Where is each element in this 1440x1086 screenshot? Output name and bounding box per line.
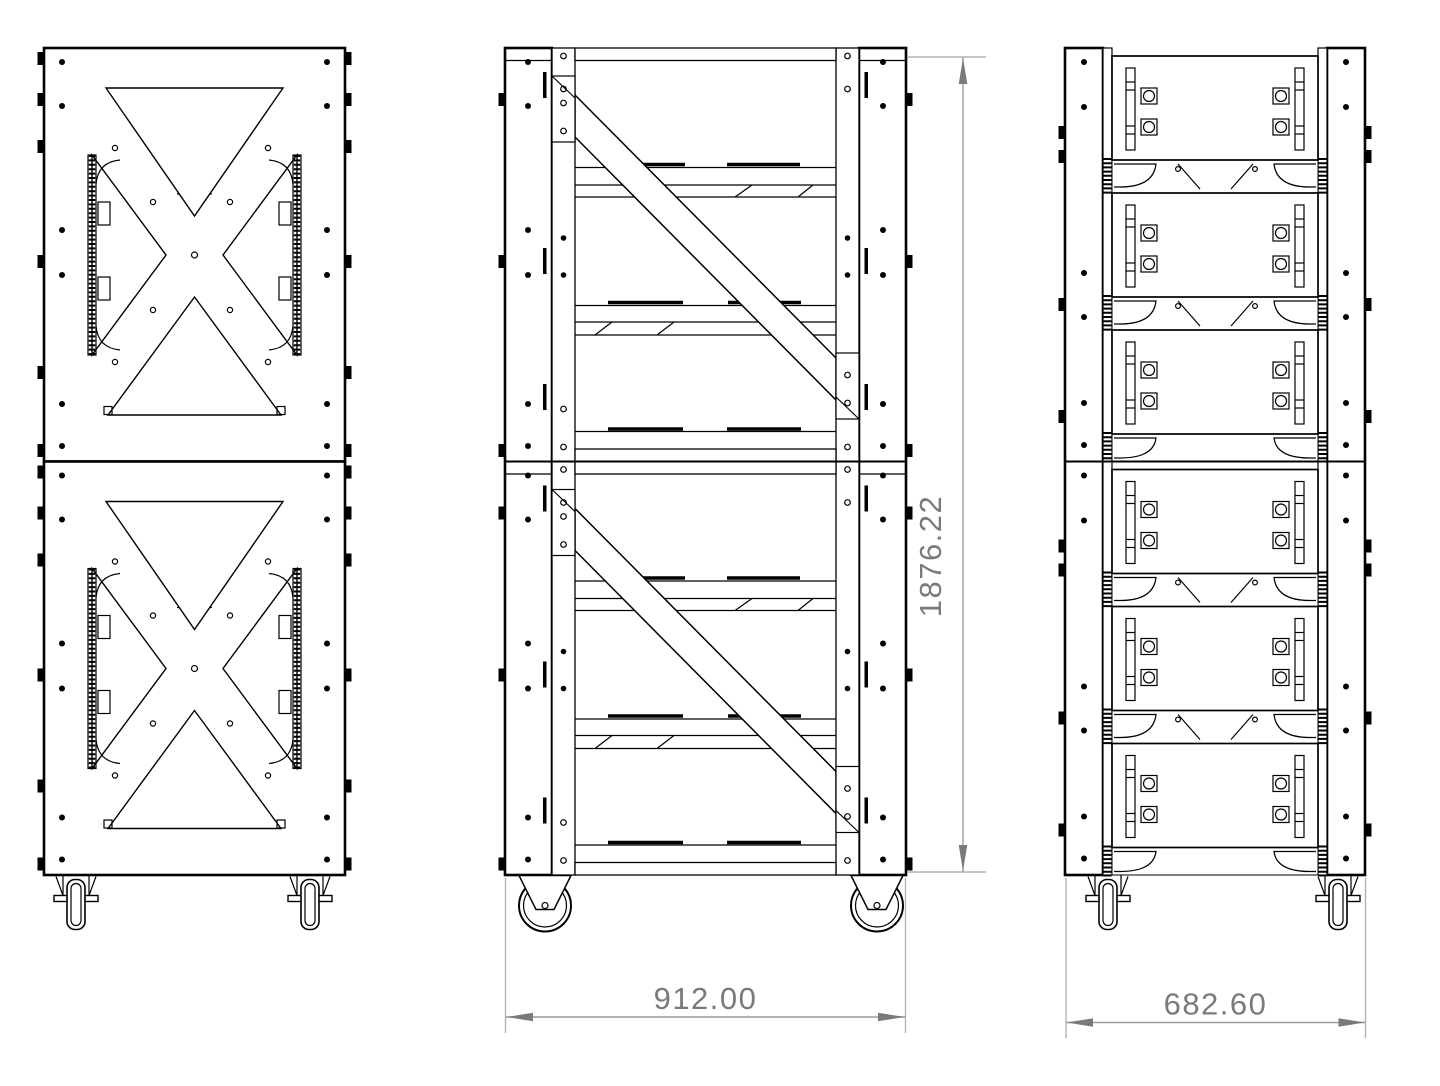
caster-right [851,876,903,932]
drawer-module-bottom [1059,462,1372,877]
caster-left [519,876,571,932]
arrow-left [506,1013,533,1021]
height-dimension: 1876.22 [908,57,986,872]
front-view [499,48,913,932]
arrow-left [1067,1018,1094,1026]
caster-left [1086,876,1130,930]
front-module-bottom [499,462,913,876]
cad-drawing-sheet: 1876.22 912.00 682.60 [0,0,1440,1086]
caster-left [54,876,98,930]
arrow-up [959,58,968,84]
side-view [38,48,352,930]
caster-right [288,876,332,930]
front-module-top [499,48,913,462]
side-module-bottom [38,462,352,876]
drawer-module-top [1059,48,1372,463]
arrow-down [959,845,968,871]
front-width-dimension-label: 912.00 [654,981,758,1016]
side-width-dimension-label: 682.60 [1164,987,1268,1022]
height-dimension-label: 1876.22 [913,495,948,618]
side-module-top [38,48,352,462]
drawer-side-view [1059,48,1372,930]
rack-cabinet-orthographic-views: 1876.22 912.00 682.60 [0,0,1440,1086]
arrow-right [1339,1018,1366,1026]
caster-right [1316,876,1360,930]
arrow-right [878,1013,905,1021]
